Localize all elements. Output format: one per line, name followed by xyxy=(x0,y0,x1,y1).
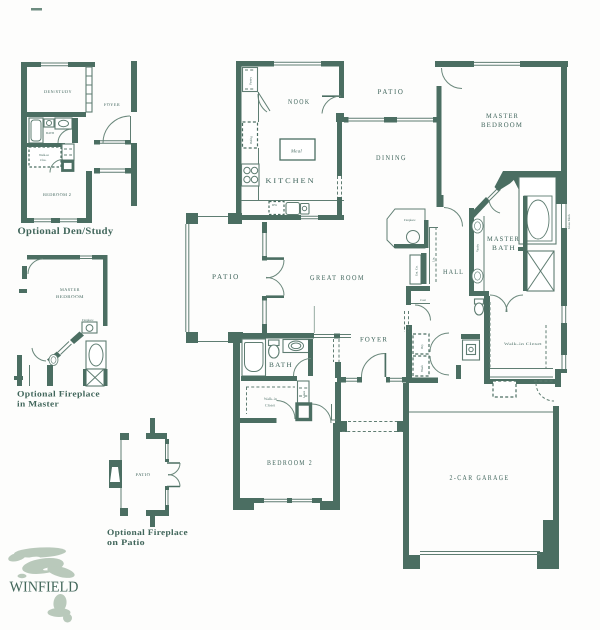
svg-text:Closet: Closet xyxy=(265,404,275,408)
svg-text:2-CAR GARAGE: 2-CAR GARAGE xyxy=(450,473,510,482)
svg-text:Linen: Linen xyxy=(302,390,306,398)
svg-text:Pantry: Pantry xyxy=(249,76,253,85)
svg-text:HALL: HALL xyxy=(443,269,464,276)
svg-text:Glass Block: Glass Block xyxy=(567,214,571,229)
svg-text:Lin.: Lin. xyxy=(432,257,436,262)
svg-text:MASTER: MASTER xyxy=(60,287,80,292)
svg-text:FOYER: FOYER xyxy=(360,337,388,344)
svg-text:BATH: BATH xyxy=(269,362,293,369)
svg-text:Vanity: Vanity xyxy=(476,243,480,252)
svg-text:Wash: Wash xyxy=(420,365,424,372)
svg-text:DINING: DINING xyxy=(376,153,407,162)
svg-text:Fireplace: Fireplace xyxy=(404,218,416,222)
svg-text:NOOK: NOOK xyxy=(288,97,311,106)
svg-text:in Master: in Master xyxy=(17,400,59,409)
svg-text:FOYER: FOYER xyxy=(104,102,120,107)
svg-text:KITCHEN: KITCHEN xyxy=(266,176,316,185)
svg-text:Walk-in: Walk-in xyxy=(264,397,277,401)
svg-text:Clos.: Clos. xyxy=(40,158,47,162)
svg-text:on Patio: on Patio xyxy=(107,538,145,547)
svg-text:MASTER: MASTER xyxy=(486,113,519,120)
svg-text:Meal: Meal xyxy=(290,149,302,155)
svg-text:Walk-in Closet: Walk-in Closet xyxy=(504,342,542,346)
svg-text:BATH: BATH xyxy=(46,131,55,135)
svg-text:Coat: Coat xyxy=(420,298,426,302)
svg-text:Fireplace: Fireplace xyxy=(82,318,94,322)
svg-text:Refrig: Refrig xyxy=(249,136,253,144)
svg-text:BEDROOM: BEDROOM xyxy=(481,122,523,129)
svg-text:Ent. Ctr.: Ent. Ctr. xyxy=(415,265,419,276)
svg-text:BEDROOM: BEDROOM xyxy=(56,294,84,299)
svg-text:MASTER: MASTER xyxy=(487,236,520,243)
svg-text:DW: DW xyxy=(272,203,277,207)
svg-text:Dry: Dry xyxy=(420,344,424,349)
svg-text:BEDROOM 2: BEDROOM 2 xyxy=(43,192,71,197)
svg-text:Walk-in: Walk-in xyxy=(39,153,49,157)
svg-text:Optional Fireplace: Optional Fireplace xyxy=(107,528,188,537)
svg-text:GREAT ROOM: GREAT ROOM xyxy=(310,273,365,282)
svg-text:WINFIELD: WINFIELD xyxy=(10,580,79,596)
svg-text:PATIO: PATIO xyxy=(378,87,405,96)
svg-text:BEDROOM 2: BEDROOM 2 xyxy=(267,458,313,467)
svg-text:DEN/STUDY: DEN/STUDY xyxy=(44,89,72,94)
svg-text:Optional Den/Study: Optional Den/Study xyxy=(18,226,114,237)
svg-text:PATIO: PATIO xyxy=(136,472,151,477)
svg-text:Optional Fireplace: Optional Fireplace xyxy=(17,390,100,399)
svg-text:BATH: BATH xyxy=(492,245,516,252)
svg-text:PATIO: PATIO xyxy=(212,272,240,281)
